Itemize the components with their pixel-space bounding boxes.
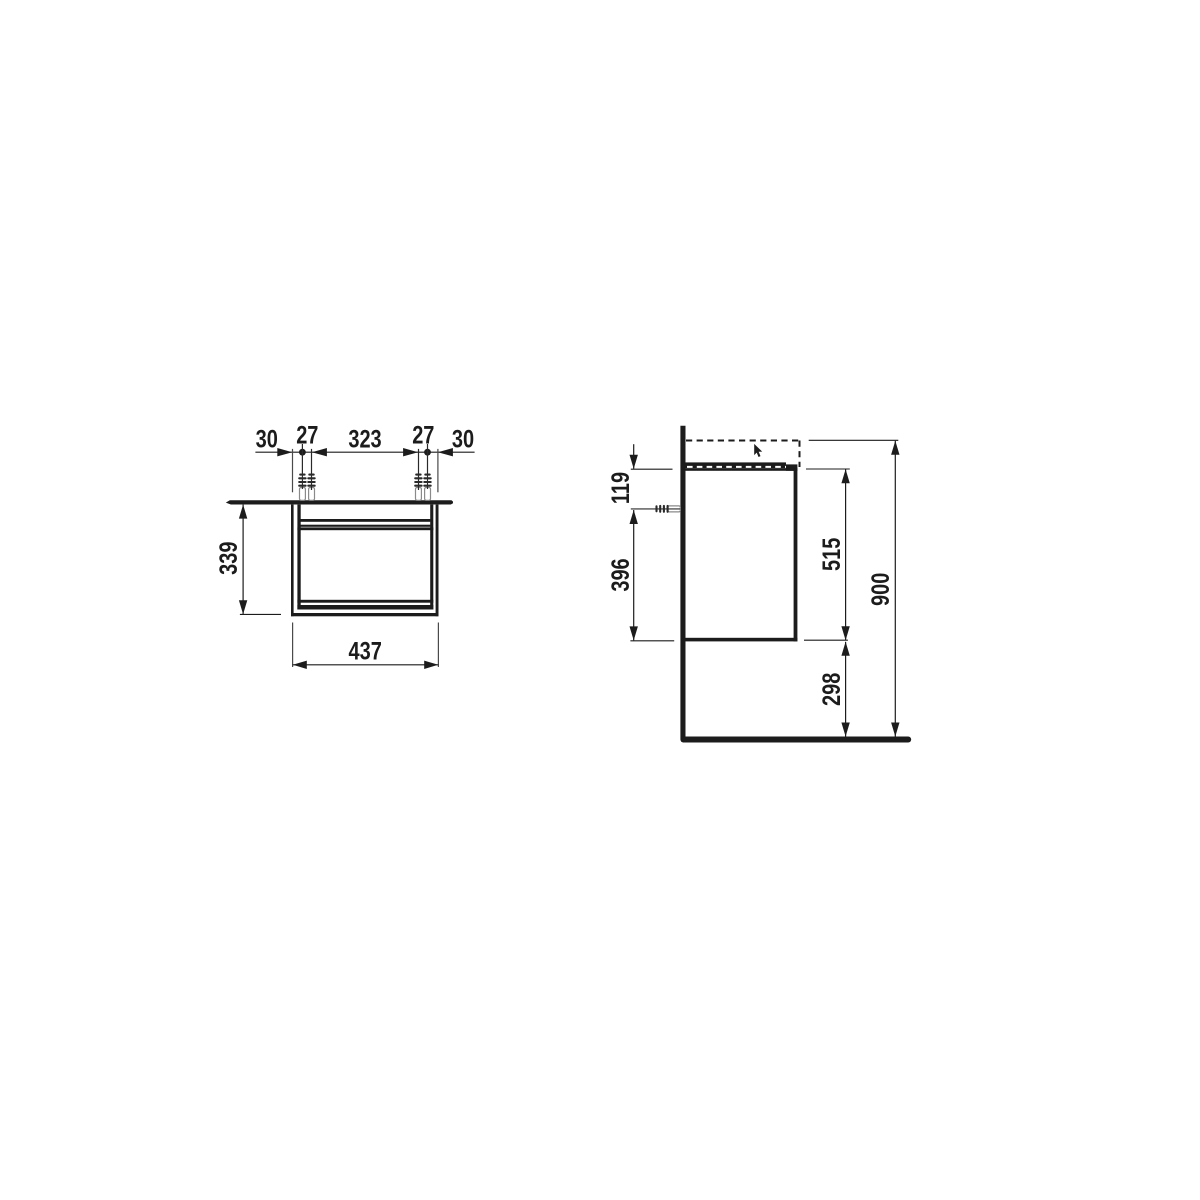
svg-text:298: 298 (818, 673, 846, 706)
svg-text:30: 30 (256, 426, 278, 454)
svg-text:323: 323 (348, 426, 381, 454)
svg-text:27: 27 (296, 421, 318, 449)
svg-text:437: 437 (349, 638, 382, 666)
svg-text:396: 396 (607, 558, 635, 591)
svg-text:30: 30 (452, 426, 474, 454)
svg-text:339: 339 (215, 542, 243, 575)
svg-text:900: 900 (867, 573, 895, 606)
svg-text:119: 119 (607, 472, 635, 504)
svg-text:515: 515 (818, 538, 846, 571)
svg-text:27: 27 (412, 421, 434, 449)
